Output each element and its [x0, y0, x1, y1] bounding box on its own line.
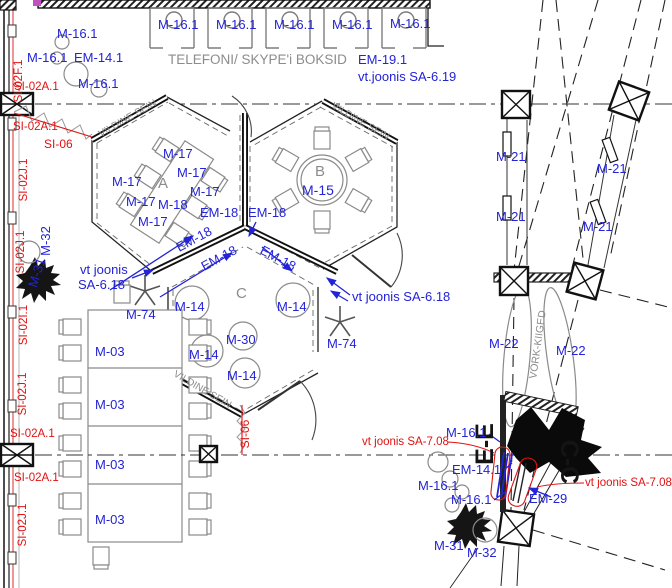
label-m16-1-booth-2: M-16.1 — [216, 17, 256, 32]
label-si02i: SI-02I.1 — [18, 305, 30, 345]
label-m16-1-booth-1: M-16.1 — [158, 17, 198, 32]
label-em18-1: EM-18 — [200, 205, 238, 220]
label-si02j-a: SI-02J.1 — [18, 159, 30, 202]
label-m16-1-tl-c: M-16.1 — [78, 76, 118, 91]
label-sa708-left: vt joonis SA-7.08 — [362, 436, 449, 448]
label-m14-4: M-14 — [227, 368, 257, 383]
label-si02j-d: SI-02J.1 — [17, 504, 29, 547]
label-si02f: SI-02F.1 — [13, 60, 25, 103]
label-sa618-right: vt joonis SA-6.18 — [352, 289, 450, 304]
label-room-b: B — [315, 163, 325, 180]
label-m17-2: M-17 — [177, 165, 207, 180]
label-sa618-left-2: SA-6.18 — [78, 277, 125, 292]
floor-plan-svg: M-16.1M-16.1EM-14.1M-16.1SI-02A.1SI-02A.… — [0, 0, 672, 588]
label-m14-2: M-14 — [277, 299, 307, 314]
label-room-a: A — [158, 175, 168, 192]
label-section-cc: C-C — [555, 440, 583, 484]
label-si02j-c: SI-02J.1 — [17, 373, 29, 416]
label-m03-1: M-03 — [95, 344, 125, 359]
label-m32-left: M-32 — [38, 226, 53, 256]
label-m74-1: M-74 — [126, 307, 156, 322]
label-m22-2: M-22 — [556, 343, 586, 358]
label-booths-title: TELEFONI/ SKYPE'i BOKSID — [168, 52, 347, 67]
label-m03-3: M-03 — [95, 457, 125, 472]
label-m16-1-booth-5: M-16.1 — [390, 16, 430, 31]
label-m16-1-tl-b: M-16.1 — [27, 50, 67, 65]
label-m21-1: M-21 — [496, 149, 526, 164]
label-si06-top: SI-06 — [44, 137, 73, 151]
label-m17-4: M-17 — [112, 174, 142, 189]
label-sa6-19: vt.joonis SA-6.19 — [358, 69, 456, 84]
section-marker-blob — [507, 407, 602, 477]
label-m14-1: M-14 — [175, 299, 205, 314]
label-m16-1-s1: M-16.1 — [446, 425, 486, 440]
label-m18: M-18 — [158, 197, 188, 212]
label-m15: M-15 — [302, 182, 334, 198]
label-m16-1-booth-3: M-16.1 — [274, 17, 314, 32]
label-si02j-b: SI-02J.1 — [15, 231, 27, 274]
label-m21-2: M-21 — [597, 161, 627, 176]
label-em14-1-tl: EM-14.1 — [74, 50, 123, 65]
label-m22-1: M-22 — [489, 336, 519, 351]
label-sa618-left-1: vt joonis — [80, 262, 128, 277]
label-room-c: C — [236, 285, 247, 302]
label-m16-1-s3: M-16.1 — [451, 492, 491, 507]
label-si02a-2: SI-02A.1 — [13, 121, 58, 133]
label-si02a-3: SI-02A.1 — [10, 428, 55, 440]
label-m17-1: M-17 — [163, 146, 193, 161]
label-m17-3: M-17 — [190, 184, 220, 199]
label-m16-1-tl-a: M-16.1 — [57, 26, 97, 41]
label-em14-1-s: EM-14.1 — [452, 462, 501, 477]
label-m21-4: M-21 — [583, 219, 613, 234]
label-m16-1-booth-4: M-16.1 — [332, 17, 372, 32]
label-si02a-4: SI-02A.1 — [14, 472, 59, 484]
label-si06-bottom: SI-06 — [238, 419, 252, 448]
label-em29: EM-29 — [529, 491, 567, 506]
label-m30: M-30 — [226, 332, 256, 347]
label-m74-2: M-74 — [327, 336, 357, 351]
label-sa708-right: vt joonis SA-7.08 — [585, 477, 672, 489]
label-m32-br: M-32 — [467, 545, 497, 560]
label-m21-3: M-21 — [496, 209, 526, 224]
label-m17-6: M-17 — [138, 214, 168, 229]
label-em19-1: EM-19.1 — [358, 52, 407, 67]
label-m03-2: M-03 — [95, 397, 125, 412]
label-m17-5: M-17 — [126, 194, 156, 209]
label-em18-2: EM-18 — [248, 205, 286, 220]
swing-ropes — [507, 115, 636, 268]
label-m14-3: M-14 — [189, 347, 219, 362]
label-m31-br: M-31 — [434, 538, 464, 553]
label-m03-4: M-03 — [95, 512, 125, 527]
magenta-marker — [33, 0, 41, 6]
floor-plan-stage: M-16.1M-16.1EM-14.1M-16.1SI-02A.1SI-02A.… — [0, 0, 672, 588]
label-m16-1-s2: M-16.1 — [418, 478, 458, 493]
